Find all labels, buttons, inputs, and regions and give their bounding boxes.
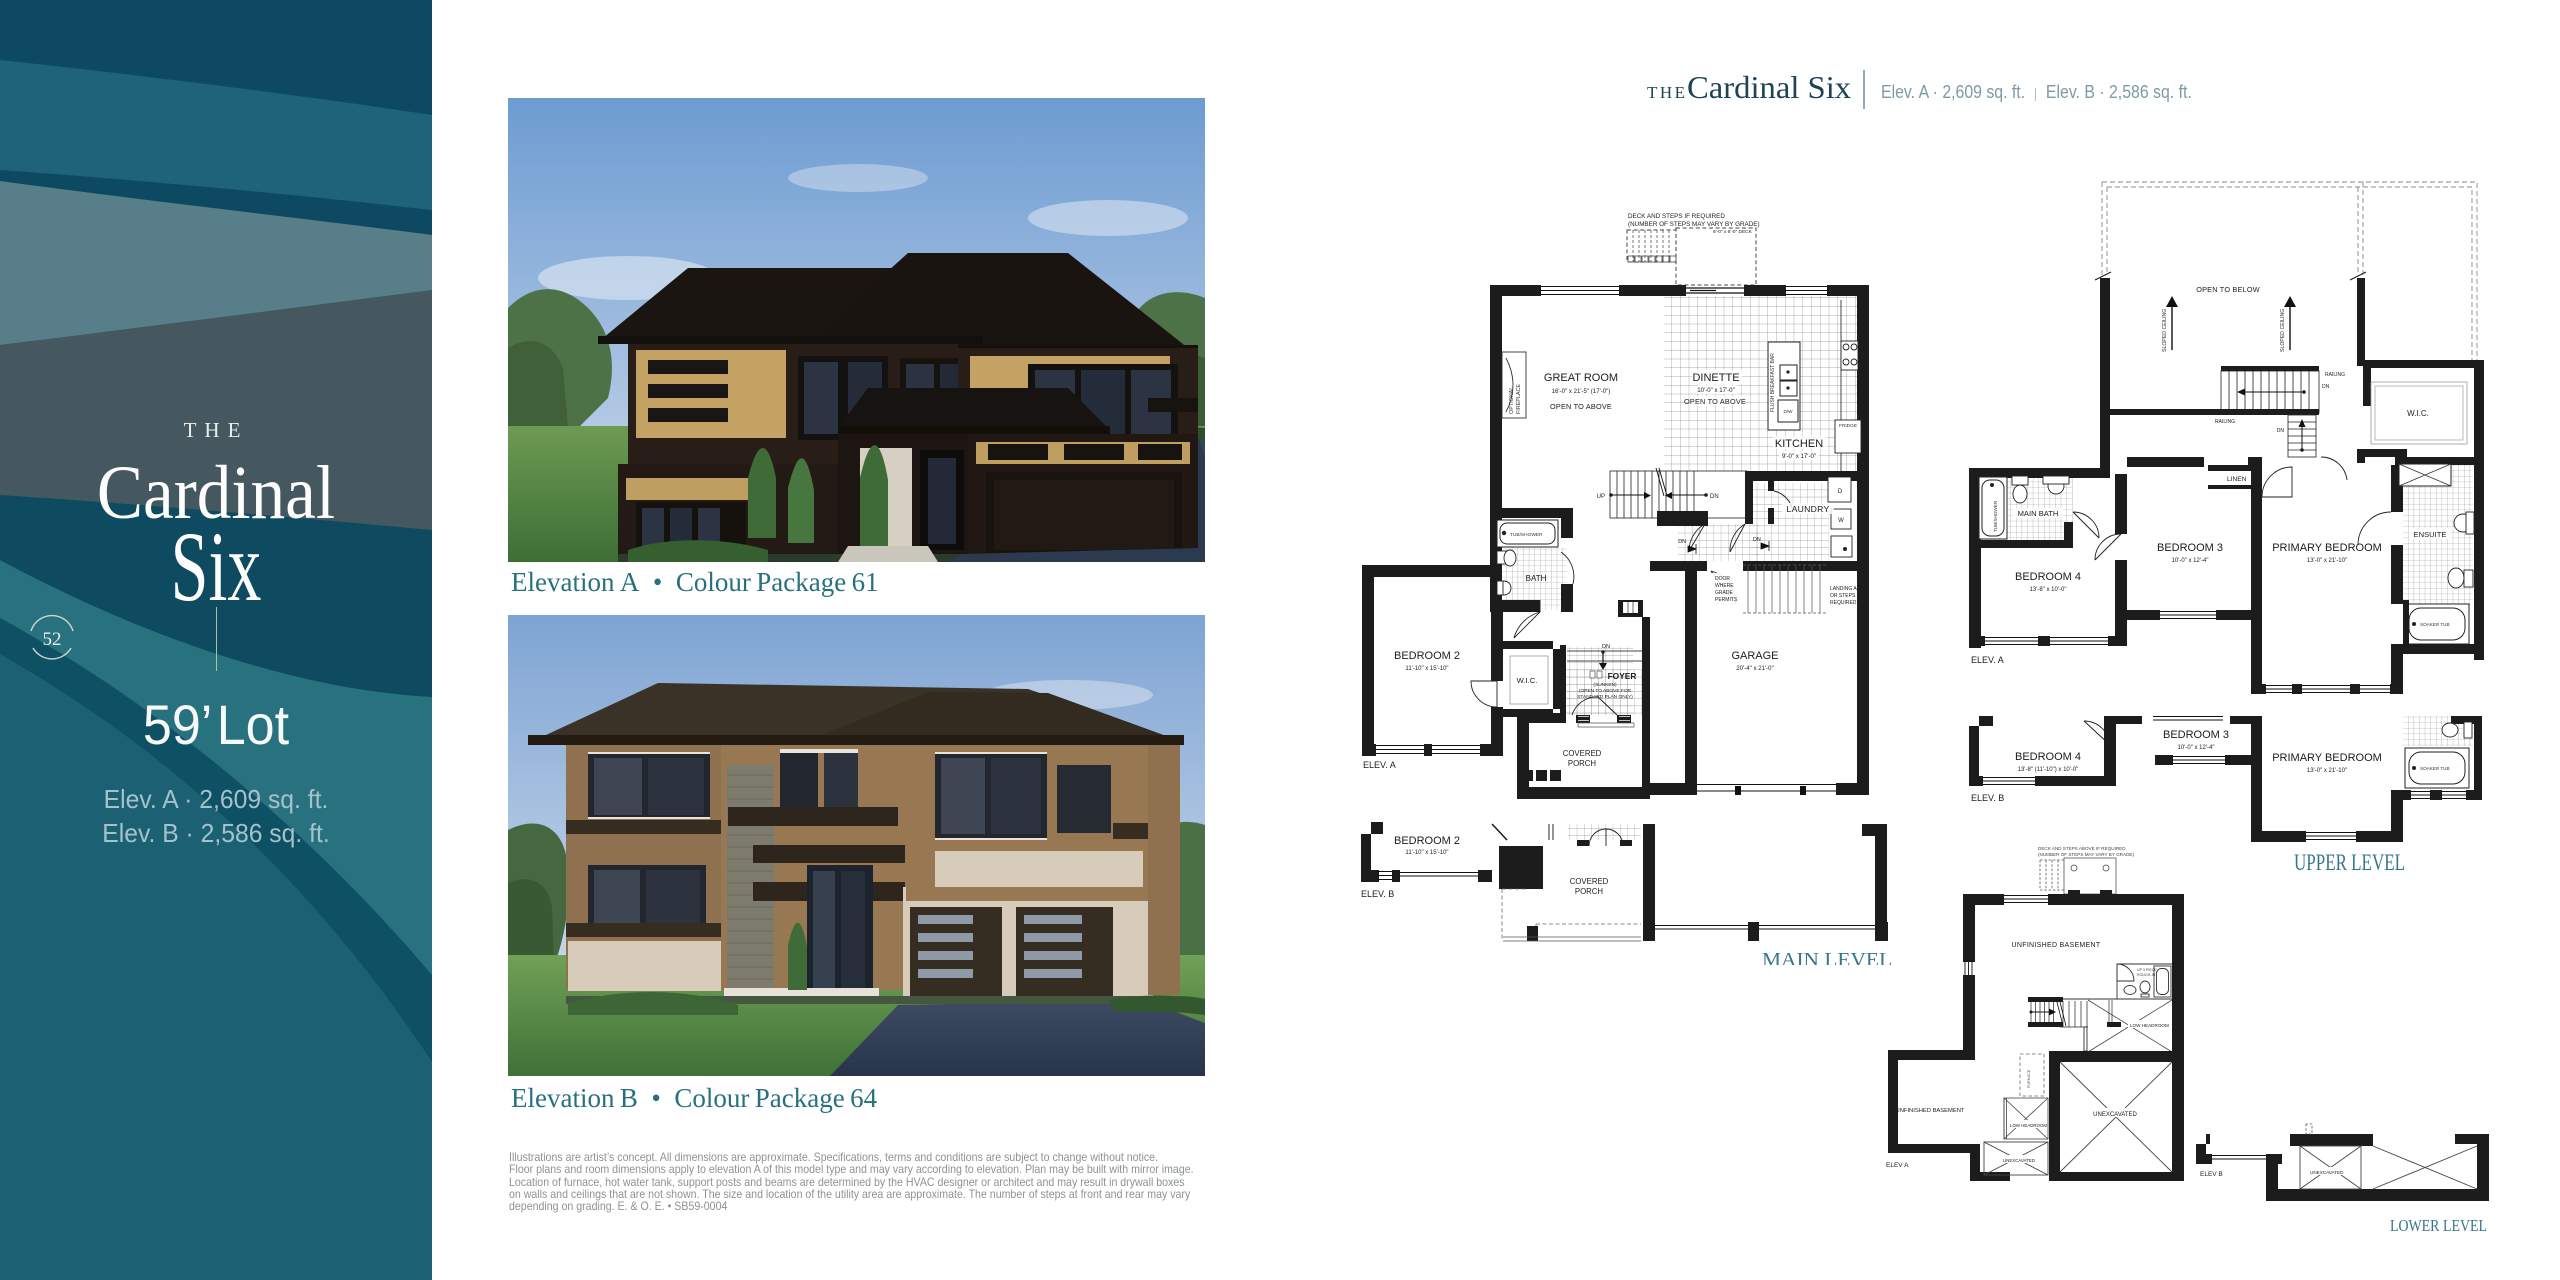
svg-text:FOYER: FOYER (1608, 671, 1637, 681)
svg-text:LAUNDRY: LAUNDRY (1786, 504, 1829, 514)
svg-text:BEDROOM 4: BEDROOM 4 (2015, 751, 2081, 763)
svg-text:WHERE: WHERE (1715, 583, 1734, 589)
svg-text:UNEXCAVATED: UNEXCAVATED (2003, 1158, 2035, 1163)
svg-text:LOW HEADROOM: LOW HEADROOM (2130, 1023, 2169, 1028)
svg-text:UP 3 PIECE: UP 3 PIECE (2137, 968, 2157, 972)
svg-text:11'-10" x 15'-10": 11'-10" x 15'-10" (1405, 850, 1448, 856)
svg-text:RAILING: RAILING (2215, 419, 2235, 425)
svg-text:BEDROOM 4: BEDROOM 4 (2015, 571, 2081, 583)
svg-text:GRADE: GRADE (1715, 590, 1733, 596)
svg-text:SLOPED CEILING: SLOPED CEILING (2162, 309, 2168, 352)
svg-text:DN: DN (1602, 644, 1610, 650)
svg-text:BEDROOM 2: BEDROOM 2 (1394, 835, 1460, 847)
svg-text:ENSUITE: ENSUITE (2414, 530, 2447, 539)
svg-text:COVERED: COVERED (1563, 749, 1602, 758)
svg-text:PORCH: PORCH (1568, 759, 1596, 768)
svg-text:OR STEPS IF: OR STEPS IF (1830, 593, 1861, 599)
svg-text:UP: UP (1597, 494, 1605, 500)
svg-text:ELEV. B: ELEV. B (1971, 793, 2004, 803)
svg-text:KITCHEN: KITCHEN (1775, 438, 1823, 450)
svg-text:(NUMBER OF STEPS MAY VARY BY G: (NUMBER OF STEPS MAY VARY BY GRADE) (1628, 221, 1760, 228)
svg-text:ELEV A: ELEV A (1886, 1162, 1909, 1169)
svg-text:11'-10" x 15'-10": 11'-10" x 15'-10" (1405, 666, 1448, 672)
svg-text:ELEV B: ELEV B (2200, 1171, 2223, 1178)
svg-text:DECK AND STEPS IF REQUIRED: DECK AND STEPS IF REQUIRED (1628, 213, 1725, 220)
svg-text:DN: DN (2322, 384, 2330, 390)
svg-text:OPEN TO BELOW: OPEN TO BELOW (2196, 285, 2260, 294)
svg-text:DN: DN (1753, 537, 1761, 543)
svg-text:DN: DN (1710, 494, 1719, 500)
svg-text:GARAGE: GARAGE (1731, 650, 1778, 662)
svg-text:10'-0" x 12'-4": 10'-0" x 12'-4" (2172, 558, 2209, 564)
svg-text:OPTIONAL: OPTIONAL (1509, 387, 1515, 414)
svg-text:SOAKER TUB: SOAKER TUB (2420, 622, 2450, 627)
svg-text:DECK AND STEPS ABOVE IF REQUIR: DECK AND STEPS ABOVE IF REQUIRED (2038, 846, 2126, 851)
svg-text:20'-4" x 21'-0": 20'-4" x 21'-0" (1736, 665, 1773, 672)
svg-text:DN: DN (1678, 539, 1686, 545)
svg-text:MAIN BATH: MAIN BATH (2018, 509, 2059, 518)
svg-text:52: 52 (43, 629, 62, 650)
svg-text:FRIDGE: FRIDGE (1839, 423, 1857, 429)
svg-text:(OPEN TO ABOVE FOR: (OPEN TO ABOVE FOR (1579, 688, 1632, 694)
svg-text:10'-0" x 17'-0": 10'-0" x 17'-0" (1697, 387, 1734, 394)
svg-text:ELEV. B: ELEV. B (1361, 889, 1394, 899)
svg-text:OPEN TO ABOVE: OPEN TO ABOVE (1550, 402, 1612, 411)
svg-text:(NUMBER OF STEPS MAY VARY BY G: (NUMBER OF STEPS MAY VARY BY GRADE) (2038, 852, 2134, 857)
svg-text:SLOPED CEILING: SLOPED CEILING (2280, 309, 2286, 352)
svg-text:ELEV. A: ELEV. A (1971, 655, 2004, 665)
svg-text:9'-0" x 17'-0": 9'-0" x 17'-0" (1782, 453, 1816, 460)
svg-text:LOWER LEVEL: LOWER LEVEL (2390, 1216, 2487, 1235)
svg-text:W.I.C.: W.I.C. (2407, 409, 2429, 418)
svg-text:LINEN: LINEN (2227, 476, 2247, 483)
svg-text:UNFINISHED BASEMENT: UNFINISHED BASEMENT (2012, 942, 2101, 949)
svg-text:13'-8" (11'-10") x 10'-0": 13'-8" (11'-10") x 10'-0" (2018, 767, 2079, 773)
svg-text:ROUGH-IN: ROUGH-IN (2137, 973, 2156, 977)
svg-text:TUB/SHOWER: TUB/SHOWER (1510, 532, 1543, 538)
svg-text:BATH: BATH (1526, 574, 1547, 583)
svg-text:FLUSH BREAKFAST BAR: FLUSH BREAKFAST BAR (1770, 353, 1776, 412)
svg-text:DN: DN (2277, 428, 2285, 434)
svg-text:(SUNKEN): (SUNKEN) (1593, 682, 1617, 688)
svg-text:13'-0" x 21'-10": 13'-0" x 21'-10" (2307, 558, 2347, 564)
svg-text:DOOR: DOOR (1715, 576, 1730, 582)
svg-text:8'-0" x 6'-0" DECK: 8'-0" x 6'-0" DECK (1713, 229, 1753, 235)
svg-text:10'-0" x 12'-4": 10'-0" x 12'-4" (2178, 745, 2215, 751)
svg-text:13'-0" x 21'-10": 13'-0" x 21'-10" (2307, 768, 2347, 774)
svg-text:BEDROOM 3: BEDROOM 3 (2163, 729, 2229, 741)
svg-text:ELEV. A: ELEV. A (1363, 760, 1396, 770)
svg-text:PRIMARY BEDROOM: PRIMARY BEDROOM (2272, 752, 2382, 764)
svg-text:D: D (1838, 489, 1843, 495)
svg-text:OPEN TO ABOVE: OPEN TO ABOVE (1684, 397, 1746, 406)
svg-text:LOW HEADROOM: LOW HEADROOM (2010, 1123, 2047, 1128)
svg-text:LANDING AND/: LANDING AND/ (1830, 586, 1866, 592)
svg-text:BEDROOM 3: BEDROOM 3 (2157, 542, 2223, 554)
svg-text:GREAT ROOM: GREAT ROOM (1544, 372, 1618, 384)
svg-text:REQUIRED: REQUIRED (1830, 600, 1857, 606)
svg-text:COVERED: COVERED (1570, 877, 1609, 886)
svg-text:UNEXCAVATED: UNEXCAVATED (2310, 1170, 2344, 1175)
svg-text:FURNACE: FURNACE (2027, 1069, 2031, 1088)
svg-text:SOAKER TUB: SOAKER TUB (2420, 766, 2450, 771)
svg-text:DINETTE: DINETTE (1692, 372, 1739, 384)
svg-text:D/W: D/W (1784, 409, 1794, 414)
svg-text:W.I.C.: W.I.C. (1517, 676, 1538, 685)
svg-text:PRIMARY BEDROOM: PRIMARY BEDROOM (2272, 542, 2382, 554)
svg-text:BEDROOM 2: BEDROOM 2 (1394, 650, 1460, 662)
svg-text:RAILING: RAILING (2325, 372, 2345, 378)
svg-text:TUB/SHOWER: TUB/SHOWER (1993, 500, 1998, 532)
svg-text:PORCH: PORCH (1575, 887, 1603, 896)
svg-text:W: W (1838, 518, 1844, 524)
svg-text:UNFINISHED BASEMENT: UNFINISHED BASEMENT (1896, 1108, 1965, 1114)
svg-text:13'-8" x 10'-0": 13'-8" x 10'-0" (2030, 587, 2067, 593)
svg-text:FIREPLACE: FIREPLACE (1516, 384, 1522, 414)
svg-text:16'-0" x 21'-5" (17'-0"): 16'-0" x 21'-5" (17'-0") (1552, 388, 1611, 395)
svg-text:PERMITS: PERMITS (1715, 597, 1738, 603)
svg-text:UNEXCAVATED: UNEXCAVATED (2093, 1112, 2137, 1118)
